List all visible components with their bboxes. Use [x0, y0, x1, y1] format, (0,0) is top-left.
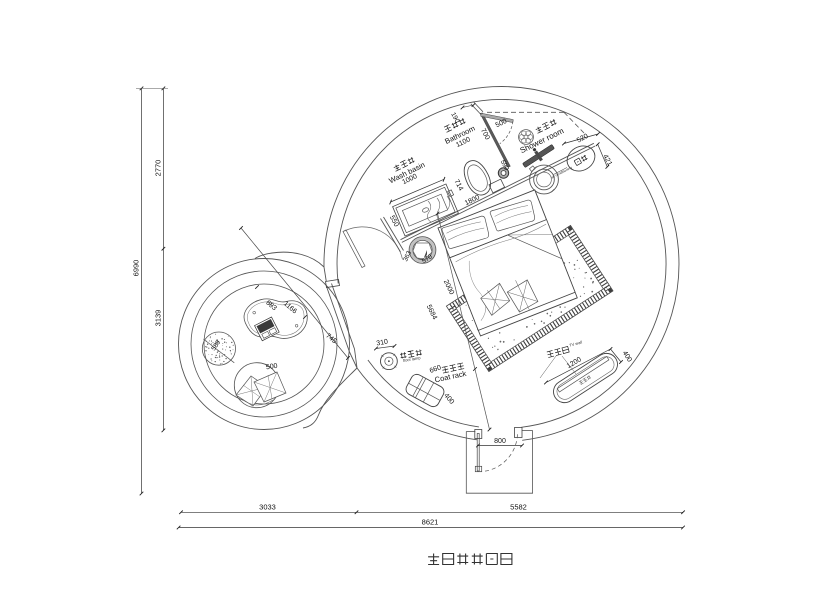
svg-text:5582: 5582: [510, 503, 527, 512]
svg-text:2770: 2770: [154, 160, 163, 177]
svg-text:3033: 3033: [259, 503, 276, 512]
svg-text:800: 800: [494, 438, 506, 445]
svg-text:6990: 6990: [132, 260, 141, 277]
svg-text:8621: 8621: [422, 518, 439, 527]
svg-text:3139: 3139: [154, 310, 163, 327]
